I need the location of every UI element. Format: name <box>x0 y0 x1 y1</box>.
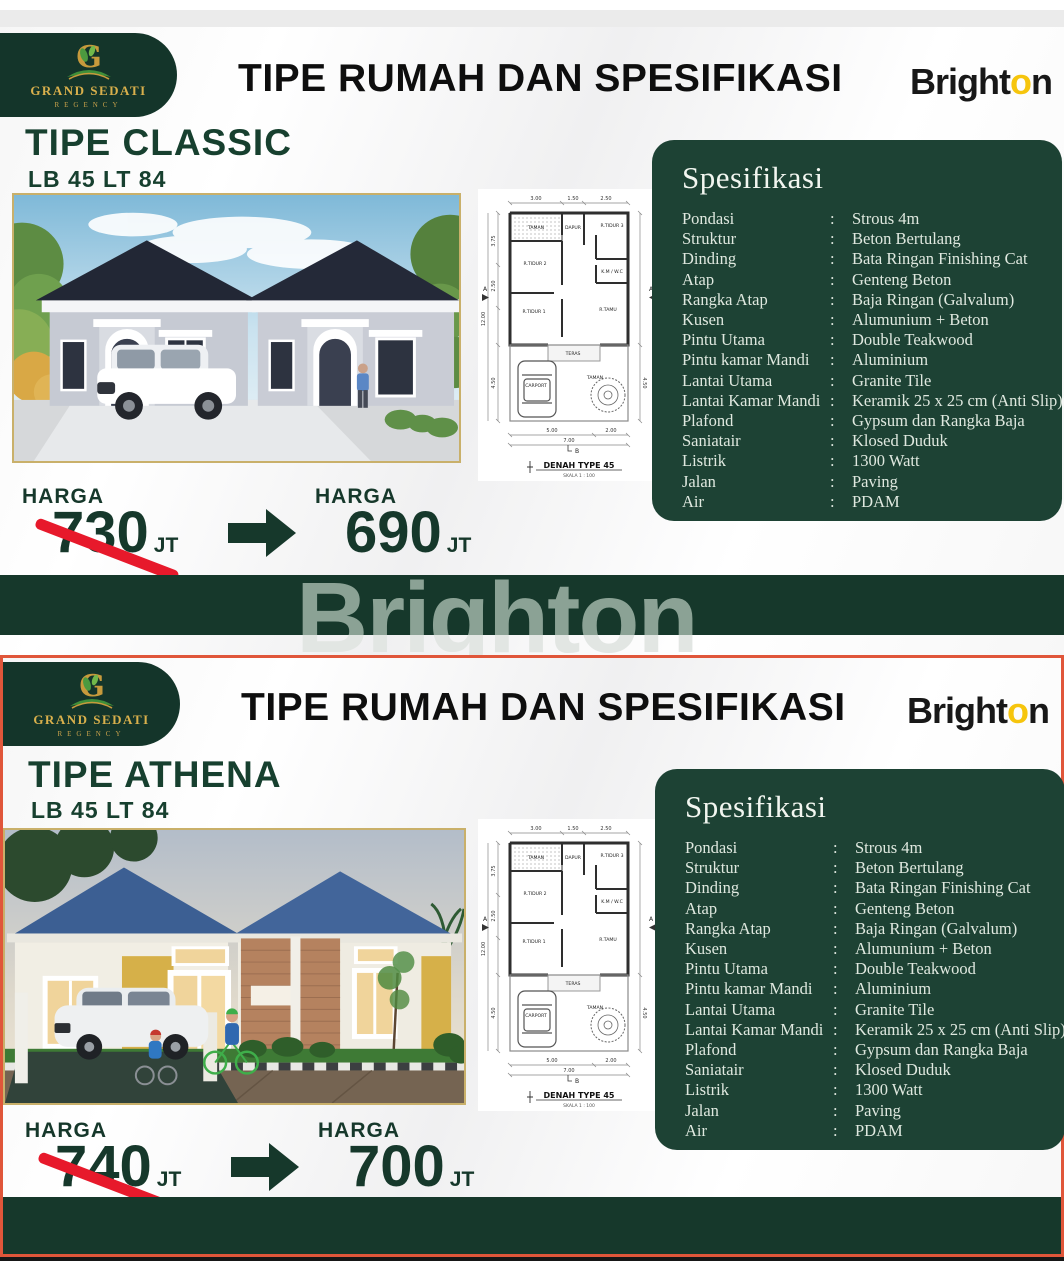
svg-text:12.00: 12.00 <box>481 942 487 956</box>
svg-text:R.TIDUR 2: R.TIDUR 2 <box>523 891 546 897</box>
svg-text:R.TIDUR 2: R.TIDUR 2 <box>523 261 546 267</box>
grand-sedati-logo: G GRAND SEDATI REGENCY <box>0 33 177 117</box>
brighton-right: n <box>1028 690 1049 731</box>
spec-colon: : <box>833 899 855 919</box>
divider-band: Brighton <box>0 575 1064 635</box>
spec-label: Struktur <box>685 858 833 878</box>
spec-colon: : <box>830 371 852 391</box>
spec-label: Atap <box>685 899 833 919</box>
logo-subname: REGENCY <box>54 101 122 109</box>
grand-sedati-logo: G GRAND SEDATI REGENCY <box>3 662 180 746</box>
logo-subname: REGENCY <box>57 730 125 738</box>
price-old-unit: JT <box>157 1168 182 1192</box>
spec-colon: : <box>830 330 852 350</box>
svg-text:G: G <box>76 41 102 75</box>
spec-row: Lantai Utama : Granite Tile <box>682 371 1048 391</box>
spec-row: Kusen : Alumunium + Beton <box>685 939 1051 959</box>
svg-text:3.00: 3.00 <box>530 196 541 202</box>
spec-value: PDAM <box>855 1121 1051 1141</box>
logo-name: GRAND SEDATI <box>33 712 149 728</box>
price-row: HARGA 730 JT HARGA 690 JT <box>22 485 492 577</box>
spec-value: 1300 Watt <box>852 451 1048 471</box>
brighton-accent-o: o <box>1010 61 1031 102</box>
spec-label: Pondasi <box>685 838 833 858</box>
arrow-right-icon <box>231 1143 299 1191</box>
logo-name: GRAND SEDATI <box>30 83 146 99</box>
spec-colon: : <box>833 1040 855 1060</box>
spec-panel: Spesifikasi Pondasi : Strous 4m Struktur… <box>652 140 1062 521</box>
panel-athena: G GRAND SEDATI REGENCY TIPE RUMAH DAN SP… <box>0 655 1064 1257</box>
spec-colon: : <box>833 1101 855 1121</box>
spec-colon: : <box>833 1121 855 1141</box>
svg-text:A: A <box>483 286 488 293</box>
spec-row: Struktur : Beton Bertulang <box>682 229 1048 249</box>
spec-colon: : <box>833 959 855 979</box>
spec-label: Jalan <box>685 1101 833 1121</box>
svg-text:A: A <box>483 916 488 923</box>
type-title: TIPE ATHENA <box>28 754 282 796</box>
svg-text:2.00: 2.00 <box>605 428 616 434</box>
logo-monogram-icon: G <box>62 670 122 710</box>
spec-colon: : <box>830 411 852 431</box>
plan-car <box>518 991 556 1047</box>
svg-text:DENAH TYPE 45: DENAH TYPE 45 <box>544 461 615 470</box>
spec-colon: : <box>830 391 852 411</box>
spec-row: Atap : Genteng Beton <box>682 270 1048 290</box>
spec-value: Baja Ringan (Galvalum) <box>852 290 1048 310</box>
spec-label: Rangka Atap <box>685 919 833 939</box>
svg-text:2.50: 2.50 <box>600 826 611 832</box>
svg-text:G: G <box>79 670 105 704</box>
spec-value: Gypsum dan Rangka Baja <box>852 411 1048 431</box>
spec-row: Pintu Utama : Double Teakwood <box>682 330 1048 350</box>
spec-list: Pondasi : Strous 4m Struktur : Beton Ber… <box>682 209 1048 512</box>
spec-label: Rangka Atap <box>682 290 830 310</box>
spec-row: Air : PDAM <box>685 1121 1051 1141</box>
brighton-logo: Brighton <box>910 61 1052 103</box>
spec-label: Struktur <box>682 229 830 249</box>
price-old-unit: JT <box>154 534 179 558</box>
svg-text:R.TIDUR 3: R.TIDUR 3 <box>600 853 623 859</box>
spec-label: Air <box>682 492 830 512</box>
svg-text:SKALA 1 : 100: SKALA 1 : 100 <box>563 1103 595 1109</box>
svg-text:R.TIDUR 3: R.TIDUR 3 <box>600 223 623 229</box>
brighton-accent-o: o <box>1007 690 1028 731</box>
spec-value: Strous 4m <box>855 838 1051 858</box>
spec-value: Granite Tile <box>852 371 1048 391</box>
spec-colon: : <box>830 472 852 492</box>
spec-label: Saniatair <box>682 431 830 451</box>
spec-label: Plafond <box>682 411 830 431</box>
svg-text:K.M / W.C: K.M / W.C <box>601 269 623 275</box>
price-old: HARGA 730 JT <box>22 485 178 564</box>
plan-car <box>518 361 556 417</box>
svg-text:4.50: 4.50 <box>641 377 647 388</box>
spec-label: Lantai Utama <box>682 371 830 391</box>
spec-colon: : <box>833 1020 855 1040</box>
spec-label: Atap <box>682 270 830 290</box>
price-new-value: 690 <box>345 503 442 564</box>
svg-text:5.00: 5.00 <box>546 1058 557 1064</box>
svg-text:3.75: 3.75 <box>491 235 497 246</box>
spec-colon: : <box>833 979 855 999</box>
spec-colon: : <box>833 939 855 959</box>
spec-value: Bata Ringan Finishing Cat <box>852 249 1048 269</box>
spec-label: Jalan <box>682 472 830 492</box>
spec-value: Granite Tile <box>855 1000 1051 1020</box>
spec-label: Air <box>685 1121 833 1141</box>
svg-text:R.TIDUR 1: R.TIDUR 1 <box>522 309 545 315</box>
svg-text:B: B <box>575 448 579 455</box>
spec-colon: : <box>830 229 852 249</box>
spec-row: Dinding : Bata Ringan Finishing Cat <box>682 249 1048 269</box>
spec-value: Beton Bertulang <box>852 229 1048 249</box>
price-new-unit: JT <box>450 1168 475 1192</box>
spec-label: Pintu kamar Mandi <box>682 350 830 370</box>
spec-row: Jalan : Paving <box>682 472 1048 492</box>
svg-text:DAPUR: DAPUR <box>565 855 582 861</box>
spec-value: Beton Bertulang <box>855 858 1051 878</box>
spec-value: Aluminium <box>852 350 1048 370</box>
spec-title: Spesifikasi <box>685 789 1051 825</box>
spec-label: Lantai Kamar Mandi <box>682 391 830 411</box>
spec-colon: : <box>833 858 855 878</box>
spec-row: Saniatair : Klosed Duduk <box>685 1060 1051 1080</box>
svg-text:TAMAN: TAMAN <box>527 225 544 231</box>
svg-text:TERAS: TERAS <box>565 351 581 357</box>
floorplan-denah: 3.00 1.50 2.50 3.75 2.50 4.50 12.00 4.50… <box>478 189 660 481</box>
spec-panel: Spesifikasi Pondasi : Strous 4m Struktur… <box>655 769 1064 1150</box>
svg-text:1.50: 1.50 <box>567 826 578 832</box>
svg-text:CARPORT: CARPORT <box>525 383 547 389</box>
arrow-right-icon <box>228 509 296 557</box>
price-new: HARGA 700 JT <box>318 1119 474 1198</box>
svg-text:TERAS: TERAS <box>565 981 581 987</box>
spec-value: Genteng Beton <box>852 270 1048 290</box>
spec-value: Alumunium + Beton <box>855 939 1051 959</box>
spec-label: Pintu Utama <box>682 330 830 350</box>
spec-value: Gypsum dan Rangka Baja <box>855 1040 1051 1060</box>
bottom-edge <box>0 1257 1064 1261</box>
svg-text:1.50: 1.50 <box>567 196 578 202</box>
spec-row: Pondasi : Strous 4m <box>682 209 1048 229</box>
brighton-left: Bright <box>907 690 1007 731</box>
svg-text:DENAH TYPE 45: DENAH TYPE 45 <box>544 1091 615 1100</box>
svg-text:A: A <box>649 916 654 923</box>
spec-row: Rangka Atap : Baja Ringan (Galvalum) <box>685 919 1051 939</box>
spec-label: Plafond <box>685 1040 833 1060</box>
house-render-athena <box>3 828 466 1105</box>
spec-value: Klosed Duduk <box>855 1060 1051 1080</box>
spec-label: Dinding <box>682 249 830 269</box>
svg-text:B: B <box>575 1078 579 1085</box>
spec-colon: : <box>833 1060 855 1080</box>
price-new-unit: JT <box>447 534 472 558</box>
svg-text:2.00: 2.00 <box>605 1058 616 1064</box>
svg-text:4.50: 4.50 <box>491 377 497 388</box>
svg-text:R.TAMU: R.TAMU <box>599 307 616 313</box>
brighton-left: Bright <box>910 61 1010 102</box>
spec-colon: : <box>830 310 852 330</box>
type-size: LB 45 LT 84 <box>31 797 169 824</box>
type-size: LB 45 LT 84 <box>28 166 166 193</box>
spec-colon: : <box>830 431 852 451</box>
spec-colon: : <box>833 1000 855 1020</box>
spec-label: Listrik <box>682 451 830 471</box>
spec-value: 1300 Watt <box>855 1080 1051 1100</box>
spec-row: Kusen : Alumunium + Beton <box>682 310 1048 330</box>
spec-colon: : <box>830 350 852 370</box>
plan-tree <box>591 378 625 412</box>
spec-colon: : <box>830 249 852 269</box>
spec-value: Double Teakwood <box>852 330 1048 350</box>
spec-row: Listrik : 1300 Watt <box>682 451 1048 471</box>
price-old: HARGA 740 JT <box>25 1119 181 1198</box>
svg-text:TAMAN: TAMAN <box>586 375 603 381</box>
spec-colon: : <box>833 878 855 898</box>
svg-text:2.50: 2.50 <box>600 196 611 202</box>
spec-row: Lantai Utama : Granite Tile <box>685 1000 1051 1020</box>
spec-value: Paving <box>855 1101 1051 1121</box>
svg-text:K.M / W.C: K.M / W.C <box>601 899 623 905</box>
svg-text:SKALA 1 : 100: SKALA 1 : 100 <box>563 473 595 479</box>
floorplan-denah: 3.00 1.50 2.50 3.75 2.50 4.50 12.00 4.50… <box>478 819 660 1111</box>
brighton-logo: Brighton <box>907 690 1049 732</box>
svg-text:DAPUR: DAPUR <box>565 225 582 231</box>
spec-row: Dinding : Bata Ringan Finishing Cat <box>685 878 1051 898</box>
spec-value: Baja Ringan (Galvalum) <box>855 919 1051 939</box>
spec-row: Pintu kamar Mandi : Aluminium <box>682 350 1048 370</box>
svg-text:4.50: 4.50 <box>641 1007 647 1018</box>
spec-colon: : <box>830 290 852 310</box>
spec-value: Genteng Beton <box>855 899 1051 919</box>
spec-row: Jalan : Paving <box>685 1101 1051 1121</box>
spec-value: Strous 4m <box>852 209 1048 229</box>
brighton-watermark: Brighton <box>296 575 697 635</box>
spec-colon: : <box>833 1080 855 1100</box>
svg-text:5.00: 5.00 <box>546 428 557 434</box>
top-divider <box>0 10 1064 27</box>
spec-label: Dinding <box>685 878 833 898</box>
svg-text:7.00: 7.00 <box>563 1068 574 1074</box>
spec-value: Double Teakwood <box>855 959 1051 979</box>
spec-list: Pondasi : Strous 4m Struktur : Beton Ber… <box>685 838 1051 1141</box>
spec-colon: : <box>830 451 852 471</box>
spec-label: Lantai Kamar Mandi <box>685 1020 833 1040</box>
footer-band <box>3 1197 1061 1254</box>
spec-label: Pintu Utama <box>685 959 833 979</box>
page-title: TIPE RUMAH DAN SPESIFIKASI <box>238 57 843 101</box>
spec-row: Pintu kamar Mandi : Aluminium <box>685 979 1051 999</box>
spec-colon: : <box>830 209 852 229</box>
price-new: HARGA 690 JT <box>315 485 471 564</box>
spec-value: Klosed Duduk <box>852 431 1048 451</box>
spec-colon: : <box>833 919 855 939</box>
spec-row: Atap : Genteng Beton <box>685 899 1051 919</box>
svg-text:2.50: 2.50 <box>491 280 497 291</box>
spec-value: Keramik 25 x 25 cm (Anti Slip) <box>855 1020 1064 1040</box>
spec-label: Pintu kamar Mandi <box>685 979 833 999</box>
spec-label: Kusen <box>682 310 830 330</box>
svg-text:12.00: 12.00 <box>481 312 487 326</box>
spec-row: Lantai Kamar Mandi : Keramik 25 x 25 cm … <box>685 1020 1051 1040</box>
spec-label: Saniatair <box>685 1060 833 1080</box>
spec-label: Pondasi <box>682 209 830 229</box>
svg-text:3.00: 3.00 <box>530 826 541 832</box>
plan-tree <box>591 1008 625 1042</box>
top-strip <box>0 0 1064 10</box>
spec-colon: : <box>830 270 852 290</box>
spec-row: Struktur : Beton Bertulang <box>685 858 1051 878</box>
price-new-value: 700 <box>348 1137 445 1198</box>
svg-text:7.00: 7.00 <box>563 438 574 444</box>
spec-row: Lantai Kamar Mandi : Keramik 25 x 25 cm … <box>682 391 1048 411</box>
svg-text:4.50: 4.50 <box>491 1007 497 1018</box>
spec-row: Pintu Utama : Double Teakwood <box>685 959 1051 979</box>
spec-value: Alumunium + Beton <box>852 310 1048 330</box>
spec-row: Air : PDAM <box>682 492 1048 512</box>
svg-text:CARPORT: CARPORT <box>525 1013 547 1019</box>
spec-value: Paving <box>852 472 1048 492</box>
svg-text:TAMAN: TAMAN <box>586 1005 603 1011</box>
spec-row: Pondasi : Strous 4m <box>685 838 1051 858</box>
svg-text:TAMAN: TAMAN <box>527 855 544 861</box>
spec-label: Listrik <box>685 1080 833 1100</box>
brighton-right: n <box>1031 61 1052 102</box>
panel-classic: G GRAND SEDATI REGENCY TIPE RUMAH DAN SP… <box>0 0 1064 655</box>
spec-colon: : <box>833 838 855 858</box>
spec-value: Aluminium <box>855 979 1051 999</box>
spec-title: Spesifikasi <box>682 160 1048 196</box>
spec-colon: : <box>830 492 852 512</box>
spec-row: Saniatair : Klosed Duduk <box>682 431 1048 451</box>
svg-text:R.TIDUR 1: R.TIDUR 1 <box>522 939 545 945</box>
svg-text:3.75: 3.75 <box>491 865 497 876</box>
spec-row: Plafond : Gypsum dan Rangka Baja <box>682 411 1048 431</box>
spec-label: Kusen <box>685 939 833 959</box>
brick-wall <box>241 936 340 1054</box>
spec-row: Rangka Atap : Baja Ringan (Galvalum) <box>682 290 1048 310</box>
spec-label: Lantai Utama <box>685 1000 833 1020</box>
logo-monogram-icon: G <box>59 41 119 81</box>
spec-row: Listrik : 1300 Watt <box>685 1080 1051 1100</box>
svg-text:2.50: 2.50 <box>491 910 497 921</box>
spec-value: PDAM <box>852 492 1048 512</box>
spec-value: Bata Ringan Finishing Cat <box>855 878 1051 898</box>
house-render-classic <box>12 193 461 463</box>
type-title: TIPE CLASSIC <box>25 122 292 164</box>
page-title: TIPE RUMAH DAN SPESIFIKASI <box>241 686 846 730</box>
spec-value: Keramik 25 x 25 cm (Anti Slip) <box>852 391 1063 411</box>
svg-text:R.TAMU: R.TAMU <box>599 937 616 943</box>
spec-row: Plafond : Gypsum dan Rangka Baja <box>685 1040 1051 1060</box>
